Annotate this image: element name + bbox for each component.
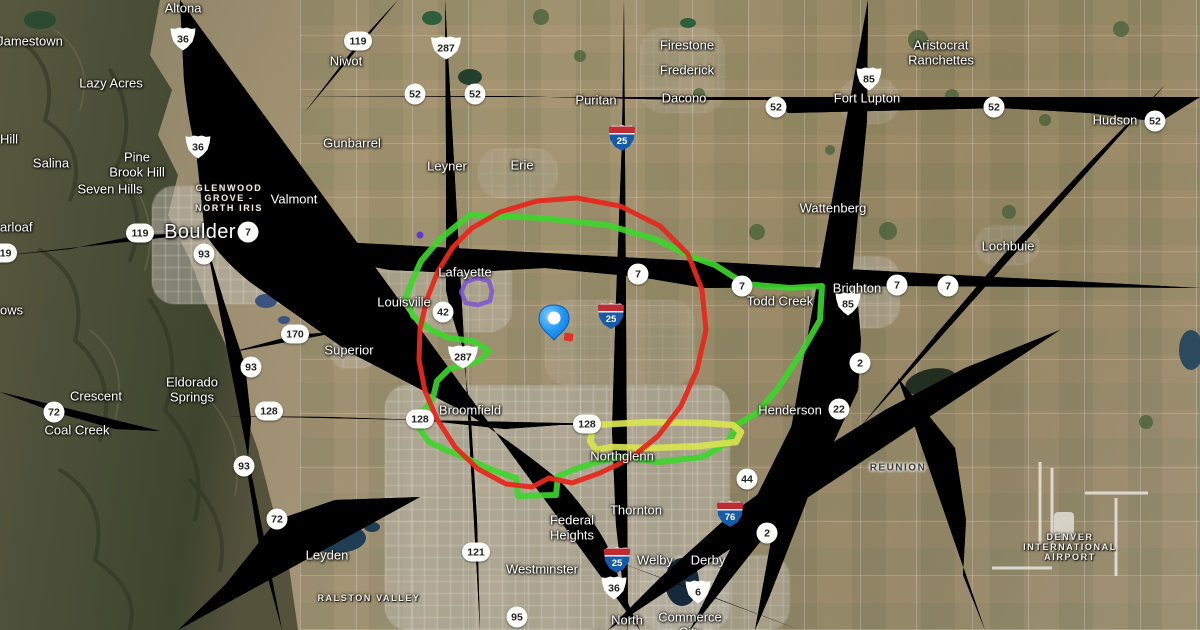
route-shield-7: 7 (887, 275, 908, 296)
route-shield-52: 52 (984, 97, 1005, 118)
place-label-leyner: Leyner (427, 160, 467, 175)
route-shield-119: 119 (0, 244, 17, 263)
route-shield-44: 44 (737, 469, 758, 490)
route-shield-85: 85 (857, 68, 882, 91)
place-label-erie: Erie (510, 159, 533, 174)
route-shield-128: 128 (255, 402, 283, 421)
route-shield-72: 72 (44, 402, 65, 423)
place-label-superior: Superior (324, 344, 373, 359)
route-shield-7: 7 (938, 276, 959, 297)
place-label-todd-creek: Todd Creek (747, 295, 813, 310)
route-shield-121: 121 (462, 543, 490, 562)
place-label-henderson: Henderson (758, 404, 822, 419)
place-label-derby: Derby (691, 554, 726, 569)
place-label-seven-hills: Seven Hills (77, 183, 142, 198)
route-shield-52: 52 (1145, 111, 1166, 132)
place-label-fort-lupton: Fort Lupton (834, 92, 901, 107)
route-shield-287: 287 (448, 346, 478, 369)
route-shield-36: 36 (186, 136, 211, 159)
place-label-gunbarrel: Gunbarrel (323, 137, 381, 152)
route-shield-119: 119 (344, 32, 372, 51)
place-label-ralston-valley: RALSTON VALLEY (317, 593, 420, 603)
place-label-boulder: Boulder (164, 221, 236, 243)
map-canvas[interactable]: JamestownAltonaLazy AcresNiwotPuritanFir… (0, 0, 1200, 630)
route-shield-25: 25 (604, 547, 631, 573)
route-shield-36: 36 (171, 28, 196, 51)
place-label-thornton: Thornton (610, 504, 662, 519)
place-label-lafayette: Lafayette (438, 266, 492, 281)
place-label-westminster: Westminster (506, 563, 578, 578)
route-shield-25: 25 (609, 125, 636, 151)
place-label-brighton: Brighton (833, 282, 881, 297)
route-shield-76: 76 (717, 501, 744, 527)
route-shield-287: 287 (431, 37, 461, 60)
route-shield-128: 128 (573, 415, 601, 434)
place-label-jamestown: Jamestown (0, 35, 63, 50)
label-layer: JamestownAltonaLazy AcresNiwotPuritanFir… (0, 0, 1200, 630)
route-shield-7: 7 (732, 276, 753, 297)
place-label-firestone: Firestone (660, 39, 714, 54)
route-shield-52: 52 (405, 84, 426, 105)
place-label-broomfield: Broomfield (439, 404, 501, 419)
route-shield-36: 36 (602, 577, 627, 600)
route-shield-93: 93 (241, 357, 262, 378)
place-label-valmont: Valmont (271, 193, 318, 208)
route-shield-2: 2 (757, 523, 778, 544)
route-shield-42: 42 (433, 302, 454, 323)
route-shield-95: 95 (507, 607, 528, 628)
place-label-ows: ows (0, 304, 23, 319)
place-label-reunion: REUNION (870, 462, 927, 473)
place-label-northglenn: Northglenn (590, 450, 654, 465)
route-shield-6: 6 (686, 581, 711, 604)
place-label-eldorado-springs: Eldorado Springs (166, 375, 218, 404)
place-label-salina: Salina (33, 157, 69, 172)
route-shield-25: 25 (598, 303, 625, 329)
place-label-lazy-acres: Lazy Acres (79, 77, 143, 92)
place-label-pine-brook-hill: Pine Brook Hill (109, 150, 165, 179)
place-label-welby: Welby (637, 554, 673, 569)
place-label-arloaf: arloaf (0, 221, 33, 236)
place-label-lochbuie: Lochbuie (982, 240, 1035, 255)
route-shield-22: 22 (829, 399, 850, 420)
place-label-north-washington: North Washington (593, 613, 661, 630)
route-shield-52: 52 (766, 97, 787, 118)
route-shield-170: 170 (281, 325, 309, 344)
place-label-leyden: Leyden (306, 549, 349, 564)
route-shield-128: 128 (406, 410, 434, 429)
place-label-coal-creek: Coal Creek (44, 424, 109, 439)
place-label-hill: Hill (0, 133, 18, 148)
place-label-louisville: Louisville (377, 296, 430, 311)
place-label-glenwood-grove-north-iris: GLENWOOD GROVE - NORTH IRIS (195, 183, 263, 213)
route-shield-2: 2 (850, 353, 871, 374)
place-label-hudson: Hudson (1093, 114, 1138, 129)
place-label-commerce-city: Commerce City (658, 610, 722, 630)
route-shield-119: 119 (126, 224, 154, 243)
place-label-altona: Altona (165, 2, 202, 17)
route-shield-93: 93 (194, 244, 215, 265)
place-label-denver-international-airport: DENVER INTERNATIONAL AIRPORT (1023, 532, 1117, 562)
route-shield-7: 7 (628, 264, 649, 285)
route-shield-52: 52 (465, 84, 486, 105)
place-label-aristocrat-ranchettes: Aristocrat Ranchettes (908, 38, 974, 67)
place-label-frederick: Frederick (660, 64, 714, 79)
route-shield-93: 93 (234, 456, 255, 477)
place-label-niwot: Niwot (330, 55, 363, 70)
place-label-crescent: Crescent (70, 390, 122, 405)
place-label-puritan: Puritan (575, 94, 616, 109)
route-shield-72: 72 (267, 509, 288, 530)
place-label-federal-heights: Federal Heights (550, 513, 594, 542)
place-label-dacono: Dacono (662, 92, 707, 107)
place-label-wattenberg: Wattenberg (800, 202, 867, 217)
route-shield-85: 85 (836, 293, 861, 316)
route-shield-7: 7 (238, 222, 259, 243)
